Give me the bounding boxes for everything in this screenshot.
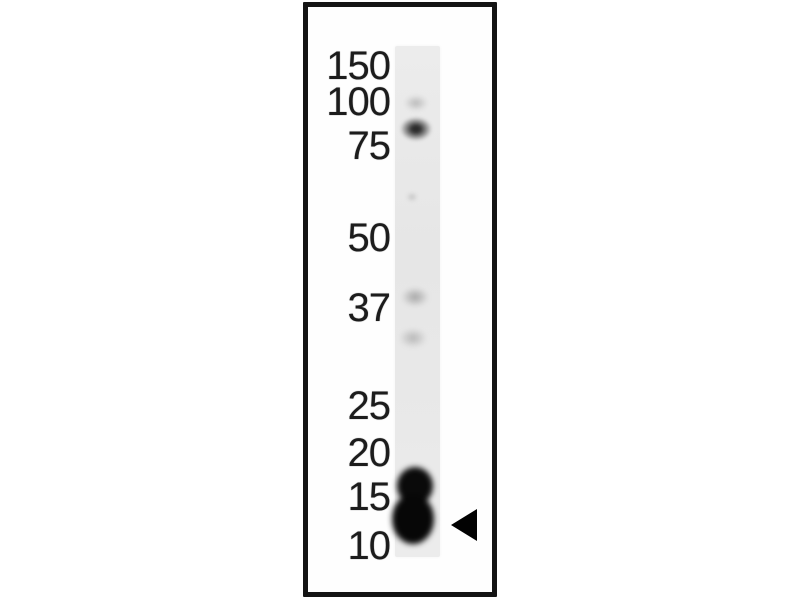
major-band-lower-lobe [392, 494, 434, 544]
left-arrowhead-icon [451, 509, 477, 541]
western-blot-figure: 150 100 75 50 37 25 20 15 10 [0, 0, 800, 600]
faint-band-above-100kda [404, 95, 428, 111]
faint-band-below-37kda [399, 328, 427, 348]
trace-speck-60kda [406, 192, 418, 202]
mw-marker-50: 50 [308, 217, 390, 259]
mw-marker-10: 10 [308, 525, 390, 567]
mw-marker-75: 75 [308, 125, 390, 167]
mw-marker-25: 25 [308, 385, 390, 427]
mw-marker-15: 15 [308, 476, 390, 518]
mw-marker-20: 20 [308, 432, 390, 474]
mw-marker-100: 100 [308, 81, 390, 123]
band-below-100kda [400, 117, 432, 141]
mw-marker-37: 37 [308, 287, 390, 329]
faint-band-37kda [401, 287, 429, 307]
